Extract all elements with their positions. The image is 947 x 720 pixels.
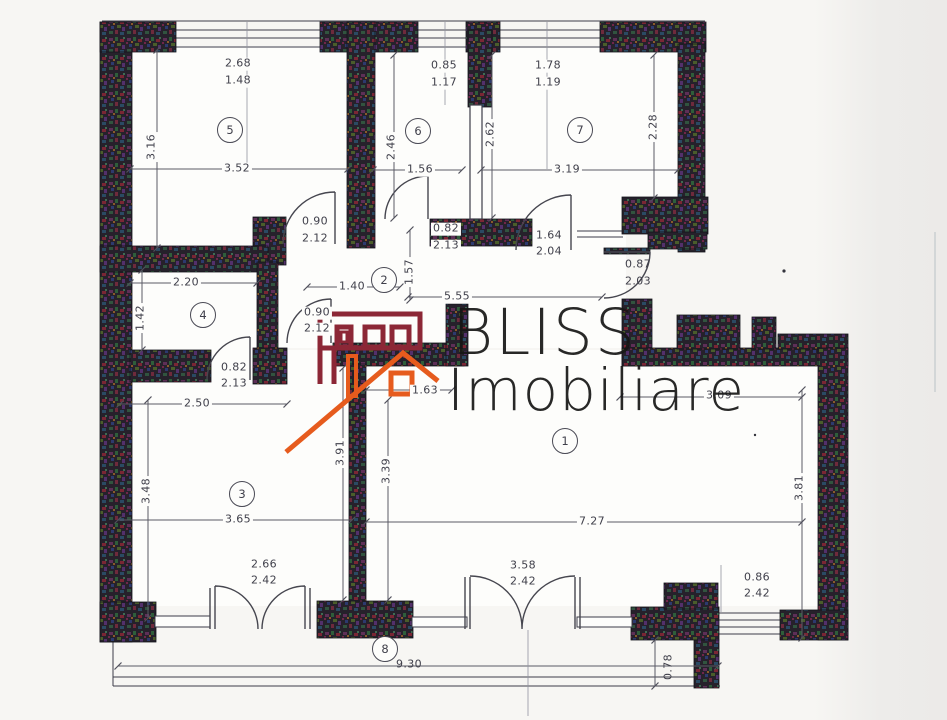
dim-r1-window-width: 0.86 — [742, 572, 772, 585]
dim-r1-height-left: 3.39 — [381, 456, 394, 486]
room-1-number-badge: 1 — [552, 428, 578, 454]
room-5-number: 5 — [226, 123, 233, 137]
dim-r1-door-width: 3.58 — [508, 560, 538, 573]
dim-r5-door-width: 0.90 — [300, 216, 330, 229]
dim-r6-door-width: 0.82 — [431, 223, 461, 236]
room-8-number: 8 — [381, 642, 388, 656]
dim-r2-width-a: 1.40 — [337, 281, 367, 294]
dim-r8-depth: 0.78 — [663, 652, 676, 682]
dim-r6-window-height: 1.17 — [429, 77, 459, 90]
room-4-number: 4 — [199, 308, 206, 322]
room-3-number: 3 — [238, 487, 245, 501]
dim-r5-height: 3.16 — [146, 132, 159, 162]
room-2-number-badge: 2 — [371, 267, 397, 293]
dim-r2-door-height: 2.12 — [302, 323, 332, 336]
dim-r7-window-height: 1.19 — [533, 77, 563, 90]
room-2-number: 2 — [380, 273, 387, 287]
dim-r7-width: 3.19 — [552, 164, 582, 177]
dim-r1-height-right: 3.81 — [794, 473, 807, 503]
dim-r3-width: 3.65 — [223, 514, 253, 527]
dim-r3-door-width: 2.66 — [249, 559, 279, 572]
dim-r6-door-height: 2.13 — [431, 240, 461, 253]
partition-wall-r6-r7 — [470, 105, 482, 219]
dim-r5-door-height: 2.12 — [300, 233, 330, 246]
room-7-number: 7 — [576, 123, 583, 137]
room-7-number-badge: 7 — [567, 117, 593, 143]
dim-r2-height: 1.57 — [404, 257, 417, 287]
dim-r1-width: 7.27 — [577, 516, 607, 529]
dim-r1-window-height: 2.42 — [742, 588, 772, 601]
room-4-number-badge: 4 — [190, 302, 216, 328]
dim-entrance-door-height: 2.03 — [623, 276, 653, 289]
room-3-number-badge: 3 — [229, 481, 255, 507]
dim-r4-height: 1.42 — [135, 303, 148, 333]
dim-r3-height-right: 3.91 — [335, 438, 348, 468]
dim-r3-door-height: 2.42 — [249, 575, 279, 588]
dim-r7-height-left: 2.62 — [485, 119, 498, 149]
floor-plan-scan: 5 6 7 2 4 3 1 8 2.68 1.48 3.16 3.52 0.90… — [0, 0, 947, 720]
dim-r7-door-height: 2.04 — [534, 246, 564, 259]
room-6-number: 6 — [414, 124, 421, 138]
dim-r1-opening: 1.63 — [410, 385, 440, 398]
dim-r4-door-width: 0.82 — [219, 362, 249, 375]
dim-r6-width: 1.56 — [405, 164, 435, 177]
dim-r4-door-height: 2.13 — [219, 378, 249, 391]
watermark-brand-subtitle: Imobiliare — [447, 361, 745, 419]
watermark-brand-name: BLISS — [452, 301, 637, 364]
dim-r7-door-width: 1.64 — [534, 230, 564, 243]
dim-r1-door-height: 2.42 — [508, 576, 538, 589]
dim-r7-height-right: 2.28 — [648, 112, 661, 142]
dim-r3-height: 3.48 — [141, 476, 154, 506]
dim-r5-width: 3.52 — [222, 163, 252, 176]
room-6-number-badge: 6 — [405, 118, 431, 144]
dim-entrance-door-width: 0.87 — [623, 259, 653, 272]
dim-r3-width-top: 2.50 — [182, 398, 212, 411]
dim-r7-window-width: 1.78 — [533, 60, 563, 73]
room-5-number-badge: 5 — [217, 117, 243, 143]
dim-r5-window-height: 1.48 — [223, 75, 253, 88]
dim-r6-height: 2.46 — [386, 132, 399, 162]
dim-r8-width: 9.30 — [394, 659, 424, 672]
dim-r5-window-width: 2.68 — [223, 58, 253, 71]
dim-r6-window-width: 0.85 — [429, 60, 459, 73]
room-1-number: 1 — [561, 434, 568, 448]
dim-r4-width: 2.20 — [171, 277, 201, 290]
dim-r2-door-width: 0.90 — [302, 307, 332, 320]
